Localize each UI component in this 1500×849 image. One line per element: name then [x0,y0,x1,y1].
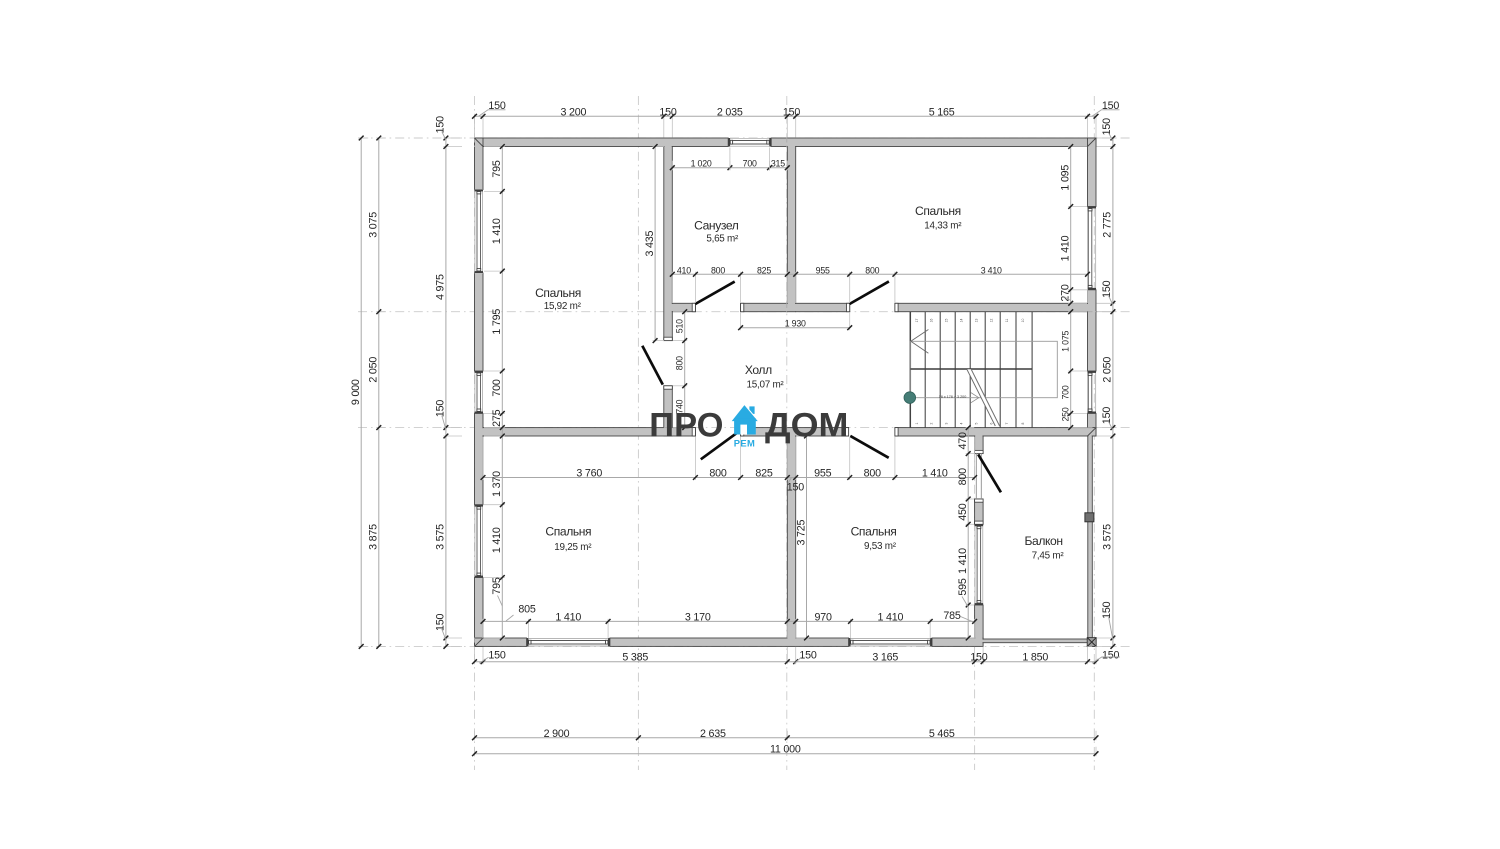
svg-text:150: 150 [1101,118,1113,135]
svg-text:700: 700 [491,379,503,396]
svg-text:150: 150 [787,481,804,493]
svg-text:Спальня: Спальня [915,204,961,218]
svg-text:5 385: 5 385 [622,652,648,664]
svg-text:Холл: Холл [745,363,772,377]
svg-text:800: 800 [864,468,881,480]
svg-text:2 635: 2 635 [700,728,726,740]
svg-text:450: 450 [957,503,969,520]
svg-text:15: 15 [945,319,949,323]
svg-text:1 410: 1 410 [491,527,503,553]
svg-text:3 200: 3 200 [561,106,587,118]
svg-text:2 035: 2 035 [717,106,743,118]
svg-text:ПРО: ПРО [649,406,723,444]
svg-text:1 410: 1 410 [922,468,948,480]
svg-text:510: 510 [675,319,685,333]
svg-text:2: 2 [930,422,934,424]
svg-text:15,92 m²: 15,92 m² [544,301,582,312]
svg-text:270: 270 [1060,284,1072,301]
svg-text:11: 11 [1005,319,1009,323]
svg-text:700: 700 [743,159,757,169]
svg-text:10: 10 [1021,319,1025,323]
svg-text:РЕМ: РЕМ [734,438,756,449]
svg-text:1 410: 1 410 [1060,235,1072,261]
svg-text:955: 955 [816,265,830,275]
svg-text:150: 150 [1101,280,1113,297]
svg-text:785: 785 [943,610,960,622]
svg-text:1 795: 1 795 [491,309,503,335]
svg-text:955: 955 [814,468,831,480]
svg-text:Спальня: Спальня [535,286,581,300]
svg-text:150: 150 [799,649,816,661]
svg-text:3 170: 3 170 [685,611,711,623]
svg-text:Спальня: Спальня [545,525,591,539]
svg-text:800: 800 [675,356,685,370]
svg-text:3: 3 [945,422,949,424]
svg-text:3 435: 3 435 [644,230,656,256]
svg-text:Спальня: Спальня [851,525,897,539]
svg-text:13: 13 [975,319,979,323]
svg-text:3 410: 3 410 [981,265,1002,275]
svg-text:19,25 m²: 19,25 m² [554,542,592,553]
svg-text:ДОМ: ДОМ [765,406,848,444]
svg-text:150: 150 [1101,407,1113,424]
svg-text:825: 825 [755,468,772,480]
svg-text:2 775: 2 775 [1102,212,1114,238]
svg-text:150: 150 [488,649,505,661]
svg-text:12: 12 [990,319,994,323]
svg-text:800: 800 [957,468,969,485]
svg-text:Балкон: Балкон [1025,534,1063,548]
svg-text:795: 795 [491,160,503,177]
svg-text:18 x 178 = 3 200: 18 x 178 = 3 200 [939,395,967,399]
svg-text:4 975: 4 975 [435,274,447,300]
svg-text:700: 700 [1061,385,1071,399]
svg-text:2 900: 2 900 [544,728,570,740]
svg-text:5 465: 5 465 [929,728,955,740]
svg-text:3 875: 3 875 [368,524,380,550]
svg-text:5 165: 5 165 [929,106,955,118]
svg-text:7,45 m²: 7,45 m² [1032,551,1065,562]
svg-text:800: 800 [711,265,725,275]
svg-text:5,65 m²: 5,65 m² [706,233,739,244]
svg-text:150: 150 [434,400,446,417]
svg-text:5: 5 [975,422,979,424]
svg-text:1 930: 1 930 [785,319,806,329]
svg-text:595: 595 [957,578,969,595]
svg-text:1 370: 1 370 [491,471,503,497]
svg-text:275: 275 [491,409,503,426]
svg-text:1 410: 1 410 [957,548,969,574]
svg-text:315: 315 [771,159,785,169]
svg-text:9,53 m²: 9,53 m² [864,541,897,552]
svg-text:17: 17 [915,319,919,323]
svg-text:7: 7 [1005,422,1009,424]
svg-text:1 410: 1 410 [491,218,503,244]
svg-text:795: 795 [491,577,503,594]
svg-text:3 075: 3 075 [368,212,380,238]
svg-text:800: 800 [865,265,879,275]
svg-text:3 575: 3 575 [1102,524,1114,550]
svg-text:1 410: 1 410 [555,611,581,623]
svg-text:970: 970 [814,611,831,623]
svg-text:1 075: 1 075 [1061,330,1071,351]
svg-text:14: 14 [960,319,964,323]
svg-text:4: 4 [960,422,964,424]
svg-text:15,07 m²: 15,07 m² [747,380,785,391]
svg-text:8: 8 [1021,422,1025,424]
svg-text:150: 150 [970,652,987,664]
svg-text:14,33 m²: 14,33 m² [924,220,962,231]
svg-text:1 020: 1 020 [691,159,712,169]
svg-text:3 165: 3 165 [872,652,898,664]
svg-text:Санузел: Санузел [694,219,739,233]
svg-text:410: 410 [677,265,691,275]
svg-text:1 410: 1 410 [878,611,904,623]
svg-text:150: 150 [659,106,676,118]
svg-text:1: 1 [915,422,919,424]
svg-text:805: 805 [518,604,535,616]
svg-text:3 760: 3 760 [576,468,602,480]
svg-text:6: 6 [990,422,994,424]
svg-text:825: 825 [757,265,771,275]
svg-text:11 000: 11 000 [770,744,801,756]
svg-text:2 050: 2 050 [1102,357,1114,383]
svg-text:3 575: 3 575 [435,524,447,550]
svg-text:150: 150 [1102,649,1119,661]
svg-text:250: 250 [1061,407,1071,421]
svg-text:150: 150 [1101,601,1113,618]
svg-text:3 725: 3 725 [795,519,807,545]
svg-text:1 850: 1 850 [1022,652,1048,664]
svg-text:150: 150 [783,106,800,118]
svg-text:1 095: 1 095 [1060,165,1072,191]
svg-text:470: 470 [957,432,969,449]
svg-text:2 050: 2 050 [368,357,380,383]
svg-text:150: 150 [434,116,446,133]
svg-text:150: 150 [434,614,446,631]
svg-text:9 000: 9 000 [350,379,362,405]
svg-text:800: 800 [709,468,726,480]
svg-text:16: 16 [930,319,934,323]
